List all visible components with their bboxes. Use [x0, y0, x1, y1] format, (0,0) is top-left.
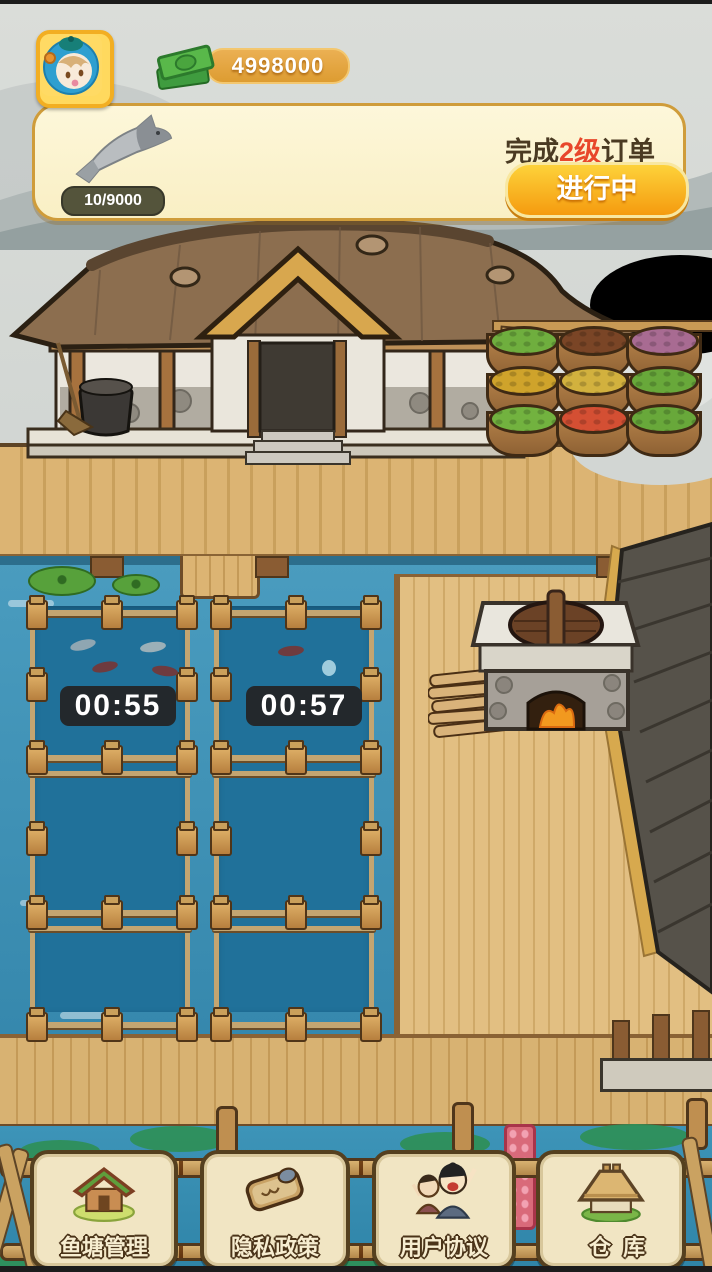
basket-contents	[559, 326, 629, 356]
basket-contents	[629, 404, 699, 434]
food-basket	[486, 411, 562, 457]
game-screen: 00:55 00:57 4998000	[0, 0, 712, 1272]
banknote-icon	[152, 40, 222, 96]
cooking-stove	[428, 585, 653, 750]
fish-pond-column-2[interactable]	[210, 598, 378, 1018]
bottom-menu-button-warehouse[interactable]: 仓库	[536, 1150, 686, 1270]
player-avatar-icon	[40, 34, 102, 96]
menu-label: 鱼塘管理	[34, 1230, 174, 1262]
basket-contents	[559, 366, 629, 396]
warehouse-icon	[571, 1158, 651, 1222]
bottom-menu-button-pond-management[interactable]: 鱼塘管理	[30, 1150, 178, 1270]
pond-house-icon	[66, 1158, 142, 1222]
coin-counter[interactable]: 4998000	[206, 48, 350, 84]
bottom-menu-button-user-agreement[interactable]: 用户协议	[372, 1150, 516, 1270]
order-progress-badge: 10/9000	[61, 186, 165, 216]
basket-contents	[559, 404, 629, 434]
bottom-edge-strip	[0, 1266, 712, 1272]
basket-contents	[489, 326, 559, 356]
pond-timer: 00:57	[246, 686, 362, 726]
order-card[interactable]: 10/9000 完成2级订单 进行中	[32, 103, 686, 221]
small-pier	[180, 556, 260, 599]
pond-timer: 00:55	[60, 686, 176, 726]
bottom-menu-button-privacy-policy[interactable]: 隐私政策	[200, 1150, 350, 1270]
water-plant	[580, 1124, 690, 1150]
food-basket	[626, 411, 702, 457]
basket-contents	[489, 404, 559, 434]
menu-label: 用户协议	[376, 1230, 512, 1262]
coin-amount: 4998000	[232, 53, 325, 78]
basket-contents	[629, 366, 699, 396]
menu-label: 仓库	[540, 1230, 694, 1262]
top-edge-strip	[0, 0, 712, 4]
stilt-platform	[600, 1058, 712, 1092]
order-status-button[interactable]: 进行中	[505, 162, 689, 218]
menu-label: 隐私政策	[204, 1230, 346, 1262]
water-plant	[130, 1126, 230, 1152]
basket-contents	[629, 326, 699, 356]
lily-pad	[112, 574, 160, 596]
fish-pond-column-1[interactable]	[26, 598, 194, 1018]
scroll-icon	[237, 1158, 313, 1222]
fish-ink-drawing	[59, 112, 199, 188]
people-icon	[408, 1158, 480, 1222]
basket-contents	[489, 366, 559, 396]
food-basket	[556, 411, 632, 457]
lily-pad	[28, 566, 96, 596]
mooring-post	[452, 1102, 474, 1154]
player-avatar[interactable]	[36, 30, 114, 108]
